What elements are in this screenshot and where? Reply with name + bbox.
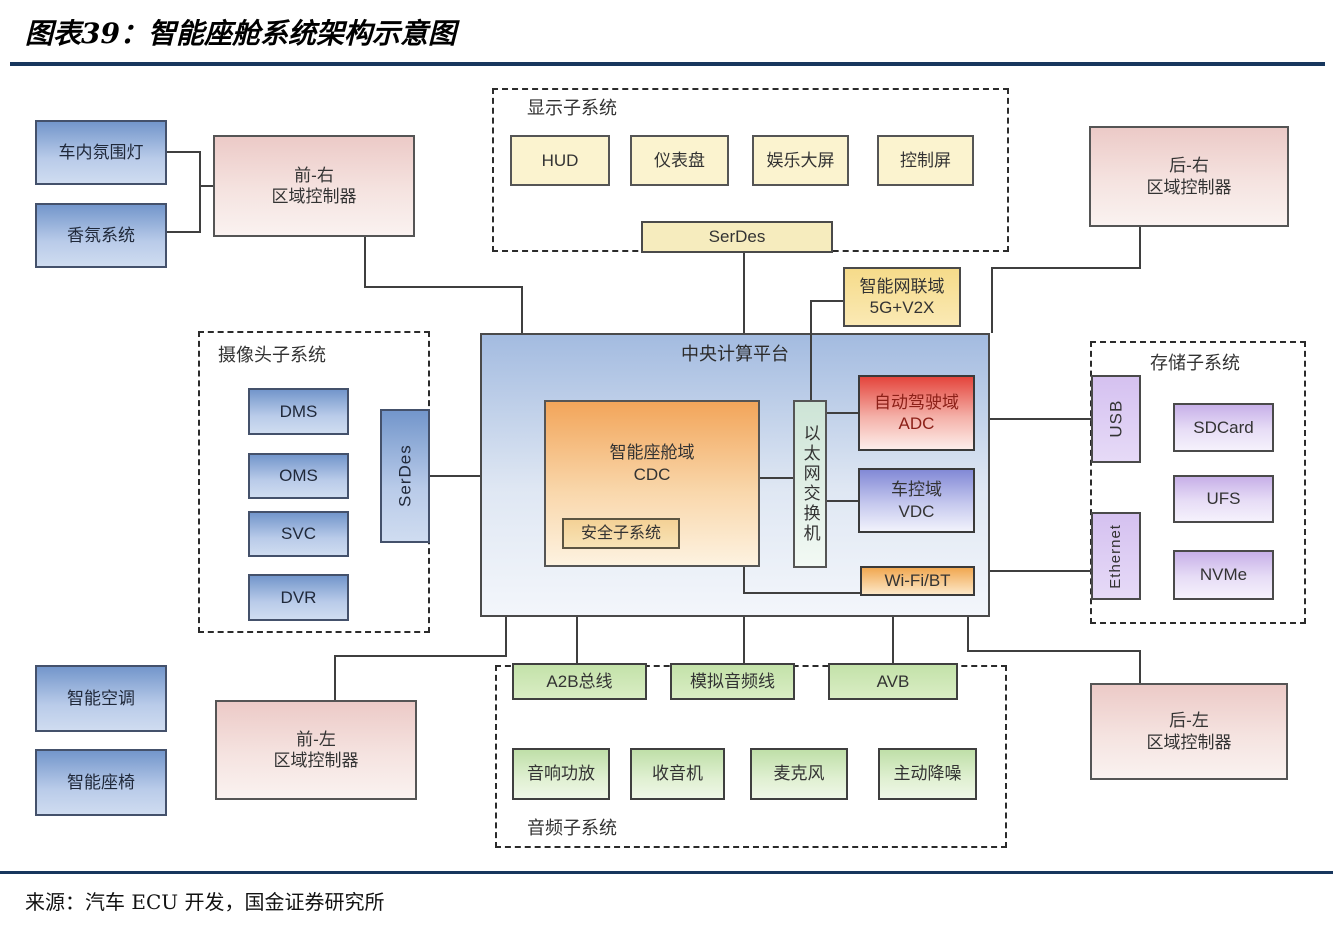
connector-line <box>743 252 745 333</box>
node-microphone: 麦克风 <box>750 748 848 800</box>
serdes-camera-label: SerDes <box>394 445 415 508</box>
node-amplifier: 音响功放 <box>512 748 610 800</box>
central-computing-platform-label: 中央计算平台 <box>480 340 990 366</box>
audio-subsystem-label: 音频子系统 <box>527 814 617 840</box>
connector-line <box>364 237 366 288</box>
connector-line <box>1139 650 1141 683</box>
connector-line <box>743 592 860 594</box>
node-analog-audio: 模拟音频线 <box>670 663 795 700</box>
connector-line <box>167 151 200 153</box>
camera-subsystem-label: 摄像头子系统 <box>218 341 326 367</box>
node-rear-left-zone-controller: 后-左 区域控制器 <box>1090 683 1288 780</box>
connector-line <box>430 475 480 477</box>
connector-line <box>967 617 969 652</box>
node-rear-right-zone-controller: 后-右 区域控制器 <box>1089 126 1289 227</box>
node-wifi-bt: Wi-Fi/BT <box>860 566 975 596</box>
node-smart-seat: 智能座椅 <box>35 749 167 816</box>
node-a2b-bus: A2B总线 <box>512 663 647 700</box>
node-ethernet: Ethernet <box>1091 512 1141 600</box>
connector-line <box>199 151 201 233</box>
figure-title: 图表39：智能座舱系统架构示意图 <box>25 12 456 52</box>
node-anc: 主动降噪 <box>878 748 977 800</box>
node-smart-ac: 智能空调 <box>35 665 167 732</box>
node-svc: SVC <box>248 511 349 557</box>
node-autonomous-driving-domain-adc: 自动驾驶域 ADC <box>858 375 975 451</box>
node-dms: DMS <box>248 388 349 435</box>
storage-subsystem-label: 存储子系统 <box>1150 349 1240 375</box>
node-ethernet-switch: 以太网交换机 <box>793 400 827 568</box>
ethernet-switch-label: 以太网交换机 <box>799 424 820 544</box>
node-sdcard: SDCard <box>1173 403 1274 452</box>
node-fragrance-system: 香氛系统 <box>35 203 167 268</box>
usb-label: USB <box>1105 400 1126 438</box>
connector-line <box>892 617 894 665</box>
node-control-screen: 控制屏 <box>877 135 974 186</box>
footer-divider <box>0 871 1333 874</box>
connector-line <box>991 267 993 333</box>
connector-line <box>760 477 793 479</box>
node-oms: OMS <box>248 453 349 499</box>
connector-line <box>334 655 336 700</box>
title-divider <box>10 62 1325 66</box>
source-note: 来源：汽车 ECU 开发，国金证券研究所 <box>25 886 384 915</box>
node-entertainment-screen: 娱乐大屏 <box>752 135 849 186</box>
node-hud: HUD <box>510 135 610 186</box>
connector-line <box>576 617 578 665</box>
connector-line <box>505 617 507 657</box>
ethernet-label: Ethernet <box>1107 524 1126 589</box>
node-ambient-light: 车内氛围灯 <box>35 120 167 185</box>
connector-line <box>990 570 1092 572</box>
connector-line <box>827 500 858 502</box>
node-nvme: NVMe <box>1173 550 1274 600</box>
connector-line <box>521 286 523 333</box>
figure-smart-cockpit-architecture: 图表39：智能座舱系统架构示意图 来源：汽车 ECU 开发，国金证券研究所 显示… <box>0 0 1333 931</box>
node-telematics-domain: 智能网联域 5G+V2X <box>843 267 961 327</box>
connector-line <box>364 286 523 288</box>
connector-line <box>967 650 1141 652</box>
connector-line <box>810 300 843 302</box>
connector-line <box>1139 226 1141 269</box>
node-radio: 收音机 <box>630 748 725 800</box>
node-front-left-zone-controller: 前-左 区域控制器 <box>215 700 417 800</box>
connector-line <box>990 418 1092 420</box>
connector-line <box>827 412 858 414</box>
connector-line <box>991 267 1141 269</box>
connector-line <box>167 231 200 233</box>
connector-line <box>743 567 745 594</box>
node-vehicle-control-domain-vdc: 车控域 VDC <box>858 468 975 533</box>
node-usb: USB <box>1091 375 1141 463</box>
connector-line <box>334 655 507 657</box>
node-ufs: UFS <box>1173 475 1274 523</box>
node-avb: AVB <box>828 663 958 700</box>
node-safety-subsystem: 安全子系统 <box>562 518 680 549</box>
display-subsystem-label: 显示子系统 <box>527 94 617 120</box>
node-instrument-cluster: 仪表盘 <box>630 135 729 186</box>
connector-line <box>199 185 213 187</box>
node-dvr: DVR <box>248 574 349 621</box>
node-serdes-camera: SerDes <box>380 409 430 543</box>
connector-line <box>743 617 745 665</box>
node-front-right-zone-controller: 前-右 区域控制器 <box>213 135 415 237</box>
node-serdes-display: SerDes <box>641 221 833 253</box>
